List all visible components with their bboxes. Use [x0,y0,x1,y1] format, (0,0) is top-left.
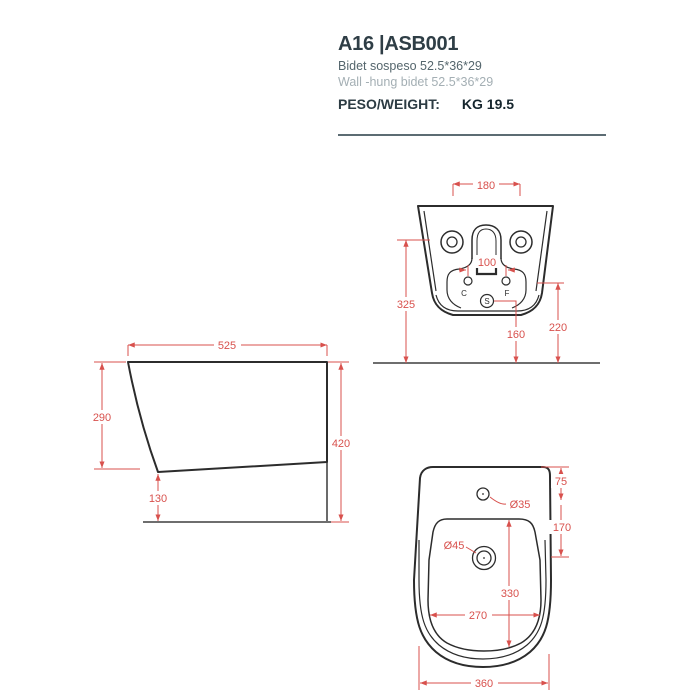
rear-boss-dome-inner [477,229,496,258]
dim-top-75-170: 75 170 [541,467,576,557]
dim-rear-160-text: 160 [507,329,525,341]
cold-label: C [461,289,467,298]
top-rim-inner-line [419,540,546,659]
side-view: 525 290 130 420 [89,338,355,522]
dim-top-d45: Ø45 [444,540,476,553]
dim-top-330: 330 [497,520,524,647]
dim-top-d45-text: Ø45 [444,540,465,552]
mounting-hole-left-outer [441,231,463,253]
dim-top-360-text: 360 [475,678,493,690]
dim-rear-180: 180 [453,178,520,196]
dim-top-270-text: 270 [469,610,487,622]
dim-top-75-text: 75 [555,476,567,488]
dim-rear-100-text: 100 [478,257,496,269]
rear-wall-inner-right [536,211,547,291]
dim-top-330-text: 330 [501,588,519,600]
dim-rear-220-text: 220 [549,322,567,334]
dim-side-525-text: 525 [218,340,236,352]
dim-rear-180-text: 180 [477,180,495,192]
dim-side-420-text: 420 [332,438,350,450]
rear-boss-dome [472,225,501,259]
hot-water-hole [502,277,510,285]
dim-side-130: 130 [145,474,172,521]
dim-rear-100: 100 [459,255,515,276]
dim-side-525: 525 [128,338,327,356]
cold-water-hole [464,277,472,285]
dim-side-290: 290 [89,362,140,469]
drain-label: S [484,297,489,306]
top-basin-outline [428,519,541,651]
dim-top-170-text: 170 [553,522,571,534]
top-body-outline [414,467,551,667]
mounting-hole-right-outer [510,231,532,253]
dim-rear-325: 325 [393,240,430,363]
drain-center [483,557,485,559]
side-body-outline [128,362,327,472]
mounting-hole-left-inner [447,237,457,247]
dim-top-d35-text: Ø35 [510,499,531,511]
mounting-hole-right-inner [516,237,526,247]
dim-side-420: 420 [328,362,355,522]
dim-top-d35: Ø35 [490,497,530,511]
tap-hole-center [482,493,484,495]
technical-drawing: C F S 180 100 [0,0,700,700]
top-view: Ø35 Ø45 75 170 330 [414,467,576,690]
dim-top-270: 270 [430,608,540,622]
hot-label: F [505,289,510,298]
dim-side-290-text: 290 [93,412,111,424]
dim-rear-325-text: 325 [397,299,415,311]
spec-sheet: A16 |ASB001 Bidet sospeso 52.5*36*29 Wal… [0,0,700,700]
rear-view: C F S 180 100 [373,178,600,363]
dim-side-130-text: 130 [149,493,167,505]
